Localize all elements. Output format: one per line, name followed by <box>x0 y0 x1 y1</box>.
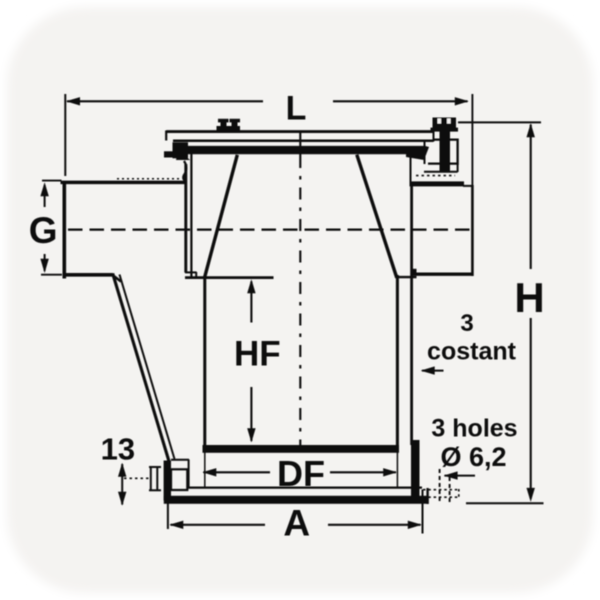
svg-text:HF: HF <box>234 334 281 373</box>
svg-text:G: G <box>29 210 58 251</box>
svg-text:H: H <box>514 274 544 321</box>
svg-text:3 holes: 3 holes <box>431 415 517 443</box>
svg-text:A: A <box>283 502 310 543</box>
svg-text:13: 13 <box>101 432 135 467</box>
svg-text:L: L <box>286 90 307 128</box>
svg-text:3: 3 <box>460 310 473 337</box>
svg-text:DF: DF <box>277 453 325 494</box>
svg-text:Ø 6,2: Ø 6,2 <box>440 442 506 472</box>
svg-text:costant: costant <box>427 338 517 366</box>
